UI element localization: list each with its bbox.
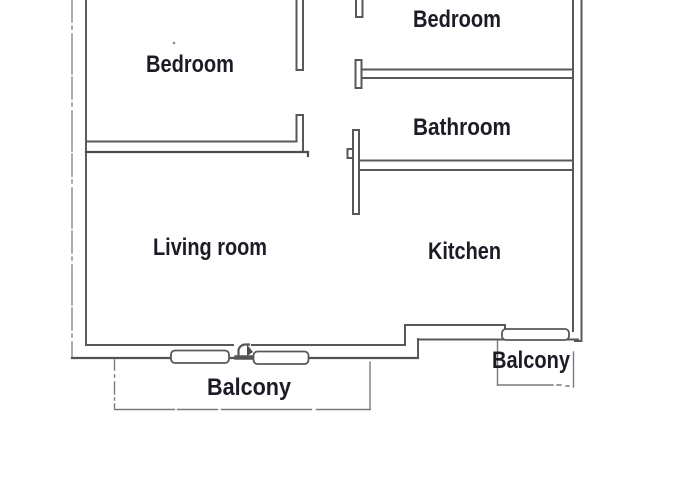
svg-text:Balcony: Balcony [207,374,292,401]
svg-text:Bedroom: Bedroom [413,6,501,33]
svg-text:Bedroom: Bedroom [146,51,234,78]
svg-text:Living room: Living room [153,234,267,261]
svg-text:Kitchen: Kitchen [428,238,501,265]
svg-text:Balcony: Balcony [492,347,571,374]
svg-text:Bathroom: Bathroom [413,114,511,141]
